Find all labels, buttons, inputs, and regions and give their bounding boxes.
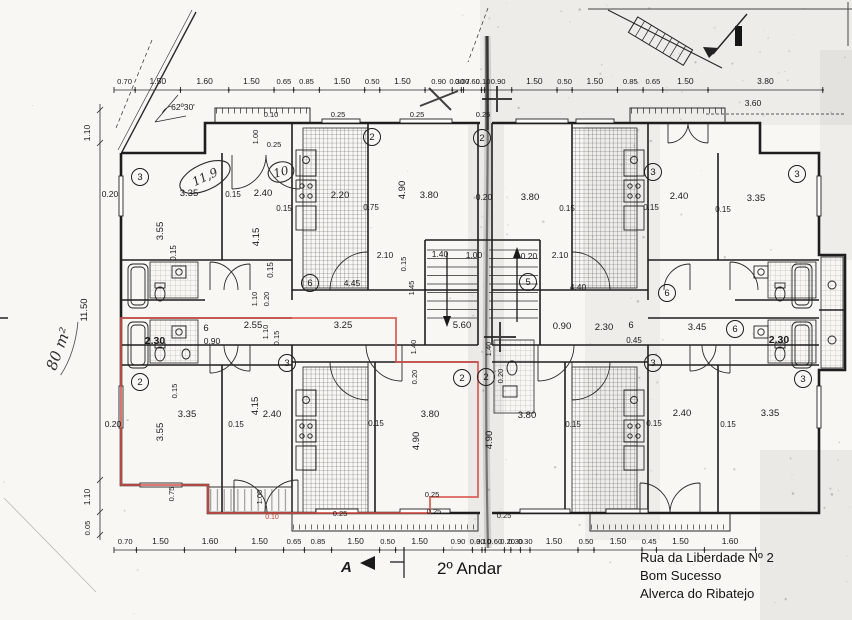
svg-text:0.25: 0.25 — [333, 509, 348, 518]
svg-text:1.50: 1.50 — [411, 536, 428, 546]
kitchen-tiles — [303, 128, 368, 288]
svg-text:0.25: 0.25 — [331, 110, 346, 119]
svg-text:1.10: 1.10 — [82, 124, 92, 141]
svg-text:0.15: 0.15 — [266, 262, 275, 278]
svg-text:0.70: 0.70 — [118, 537, 133, 546]
window — [606, 509, 648, 513]
svg-text:0.85: 0.85 — [623, 77, 638, 86]
svg-text:3.80: 3.80 — [421, 409, 440, 420]
window — [400, 119, 452, 123]
svg-text:3: 3 — [650, 358, 655, 369]
svg-text:4.90: 4.90 — [484, 431, 495, 450]
svg-text:0.20: 0.20 — [410, 370, 419, 385]
svg-text:5: 5 — [525, 277, 530, 288]
svg-text:3.60: 3.60 — [745, 98, 762, 108]
svg-text:0.85: 0.85 — [311, 537, 326, 546]
svg-text:3.80: 3.80 — [521, 192, 540, 203]
svg-text:0.50: 0.50 — [365, 77, 380, 86]
svg-text:0.20: 0.20 — [496, 369, 505, 384]
window — [119, 176, 123, 216]
svg-text:1.45: 1.45 — [407, 281, 416, 296]
svg-text:1.00: 1.00 — [255, 490, 264, 505]
svg-text:0.25: 0.25 — [427, 507, 442, 516]
svg-text:0.70: 0.70 — [117, 77, 132, 86]
svg-text:1.60: 1.60 — [202, 536, 219, 546]
svg-text:0.25: 0.25 — [267, 140, 282, 149]
svg-text:6: 6 — [628, 320, 633, 331]
svg-text:0.15: 0.15 — [225, 190, 241, 199]
svg-text:2.40: 2.40 — [254, 188, 273, 199]
svg-text:3.35: 3.35 — [178, 409, 197, 420]
svg-text:4.45: 4.45 — [344, 278, 361, 288]
svg-text:1.50: 1.50 — [394, 76, 411, 86]
svg-text:0.10: 0.10 — [264, 110, 279, 119]
svg-text:6: 6 — [203, 323, 208, 334]
svg-text:1.50: 1.50 — [334, 76, 351, 86]
svg-text:1.50: 1.50 — [150, 76, 167, 86]
svg-text:6: 6 — [307, 278, 312, 289]
svg-text:3.80: 3.80 — [757, 76, 774, 86]
svg-text:2: 2 — [459, 373, 464, 384]
svg-text:0.15: 0.15 — [399, 257, 408, 272]
svg-text:0.15: 0.15 — [170, 384, 179, 399]
svg-text:1.50: 1.50 — [152, 536, 169, 546]
svg-text:0.90: 0.90 — [451, 537, 466, 546]
bathroom-tiles — [150, 262, 198, 298]
svg-text:1.50: 1.50 — [526, 76, 543, 86]
window — [576, 119, 614, 123]
svg-text:0.45: 0.45 — [642, 537, 657, 546]
svg-text:3.45: 3.45 — [688, 322, 707, 333]
svg-text:0.15: 0.15 — [272, 331, 281, 346]
svg-text:2.10: 2.10 — [377, 250, 394, 260]
svg-text:0.20: 0.20 — [521, 251, 538, 261]
svg-text:1.10: 1.10 — [250, 292, 259, 307]
svg-text:0.30: 0.30 — [518, 537, 533, 546]
svg-text:0.20: 0.20 — [105, 419, 122, 429]
svg-text:0.90: 0.90 — [431, 77, 446, 86]
svg-text:3: 3 — [137, 172, 142, 183]
svg-text:2: 2 — [137, 377, 142, 388]
svg-text:5.60: 5.60 — [453, 320, 472, 331]
svg-text:3.35: 3.35 — [747, 193, 766, 204]
svg-text:3: 3 — [794, 169, 799, 180]
svg-text:0.15: 0.15 — [276, 204, 292, 213]
svg-text:0.90: 0.90 — [491, 77, 506, 86]
svg-text:3.80: 3.80 — [420, 190, 439, 201]
svg-text:2.10: 2.10 — [552, 250, 569, 260]
svg-text:3.25: 3.25 — [334, 320, 353, 331]
address-line-3: Alverca do Ribatejo — [640, 586, 754, 601]
kitchen-tiles — [572, 128, 637, 288]
svg-text:3.80: 3.80 — [518, 410, 537, 421]
svg-text:A: A — [340, 559, 352, 576]
svg-text:4.90: 4.90 — [411, 432, 422, 451]
svg-text:0.15: 0.15 — [646, 419, 662, 428]
svg-text:2.20: 2.20 — [331, 190, 350, 201]
svg-text:2: 2 — [369, 132, 374, 143]
svg-text:0.15: 0.15 — [715, 205, 731, 214]
svg-text:0.15: 0.15 — [565, 420, 581, 429]
svg-text:2.30: 2.30 — [595, 322, 614, 333]
svg-text:0.85: 0.85 — [299, 77, 314, 86]
svg-text:0.50: 0.50 — [380, 537, 395, 546]
svg-text:0.10: 0.10 — [476, 77, 491, 86]
svg-text:1.50: 1.50 — [251, 536, 268, 546]
svg-text:0.15: 0.15 — [228, 420, 244, 429]
svg-text:1.50: 1.50 — [587, 76, 604, 86]
svg-text:0.15: 0.15 — [559, 204, 575, 213]
window — [516, 119, 568, 123]
svg-text:1.50: 1.50 — [243, 76, 260, 86]
svg-text:2.55: 2.55 — [244, 320, 263, 331]
window — [520, 509, 570, 513]
svg-text:0.45: 0.45 — [626, 336, 642, 345]
page-title: 2º Andar — [437, 559, 502, 578]
window — [817, 176, 821, 216]
svg-text:0.15: 0.15 — [169, 245, 178, 261]
svg-text:3: 3 — [800, 374, 805, 385]
svg-text:2: 2 — [483, 372, 488, 383]
svg-text:6: 6 — [664, 288, 669, 299]
svg-text:2.40: 2.40 — [670, 191, 689, 202]
window — [817, 386, 821, 428]
svg-text:0.15: 0.15 — [368, 419, 384, 428]
svg-text:0.05: 0.05 — [83, 521, 92, 536]
svg-text:2.30: 2.30 — [145, 335, 166, 347]
svg-text:2.30: 2.30 — [769, 334, 790, 346]
window — [322, 119, 360, 123]
svg-text:1.10: 1.10 — [261, 325, 270, 340]
svg-text:1.00: 1.00 — [251, 130, 260, 145]
svg-text:1.50: 1.50 — [677, 76, 694, 86]
svg-text:0.10: 0.10 — [265, 514, 279, 521]
svg-text:0.75: 0.75 — [167, 487, 176, 502]
svg-text:62º30': 62º30' — [171, 102, 195, 112]
svg-text:0.25: 0.25 — [497, 511, 512, 520]
svg-text:0.15: 0.15 — [643, 203, 659, 212]
svg-text:0.65: 0.65 — [276, 77, 291, 86]
svg-text:0.50: 0.50 — [579, 537, 594, 546]
svg-text:0.50: 0.50 — [557, 77, 572, 86]
svg-text:3: 3 — [284, 358, 289, 369]
svg-text:0.25: 0.25 — [425, 490, 440, 499]
svg-text:0.65: 0.65 — [287, 537, 302, 546]
svg-text:1.50: 1.50 — [672, 536, 689, 546]
floor-plan-scan: 0.701.501.601.500.650.851.500.501.500.90… — [0, 0, 852, 620]
svg-text:1.40: 1.40 — [432, 249, 449, 259]
svg-text:1.40: 1.40 — [409, 340, 418, 355]
svg-text:1.10: 1.10 — [82, 488, 92, 505]
svg-text:1.60: 1.60 — [196, 76, 213, 86]
bathroom-tiles — [821, 257, 843, 368]
svg-text:0.90: 0.90 — [553, 321, 572, 332]
address-line-2: Bom Sucesso — [640, 568, 721, 583]
svg-text:0.25: 0.25 — [476, 110, 491, 119]
svg-text:3: 3 — [650, 167, 655, 178]
svg-text:4.90: 4.90 — [397, 181, 408, 200]
address-line-1: Rua da Liberdade Nº 2 — [640, 550, 774, 565]
svg-text:2: 2 — [479, 133, 484, 144]
svg-text:3.55: 3.55 — [155, 222, 166, 241]
svg-text:0.90: 0.90 — [204, 336, 221, 346]
svg-text:1.50: 1.50 — [546, 536, 563, 546]
svg-text:0.15: 0.15 — [720, 420, 736, 429]
svg-text:6: 6 — [732, 324, 737, 335]
svg-text:4.40: 4.40 — [570, 282, 587, 292]
svg-text:0.25: 0.25 — [410, 110, 425, 119]
svg-text:0.20: 0.20 — [262, 292, 271, 307]
svg-text:0.65: 0.65 — [646, 77, 661, 86]
kitchen-tiles — [303, 367, 368, 513]
svg-text:0.20: 0.20 — [102, 189, 119, 199]
svg-text:1.00: 1.00 — [466, 250, 483, 260]
svg-text:3.55: 3.55 — [155, 423, 166, 442]
svg-text:1.50: 1.50 — [347, 536, 364, 546]
svg-text:0.75: 0.75 — [363, 203, 379, 212]
svg-text:2.40: 2.40 — [263, 409, 282, 420]
kitchen-tiles — [572, 367, 637, 513]
svg-text:1.60: 1.60 — [722, 536, 739, 546]
svg-text:3.35: 3.35 — [761, 408, 780, 419]
svg-text:2.40: 2.40 — [673, 408, 692, 419]
svg-text:4.15: 4.15 — [250, 397, 261, 416]
svg-text:11.50: 11.50 — [79, 298, 90, 321]
svg-text:0.20: 0.20 — [476, 192, 493, 202]
svg-text:1.50: 1.50 — [610, 536, 627, 546]
svg-text:4.15: 4.15 — [251, 228, 262, 247]
svg-text:1.40: 1.40 — [484, 342, 493, 357]
scanned-floor-plan-page: 0.701.501.601.500.650.851.500.501.500.90… — [0, 0, 852, 620]
